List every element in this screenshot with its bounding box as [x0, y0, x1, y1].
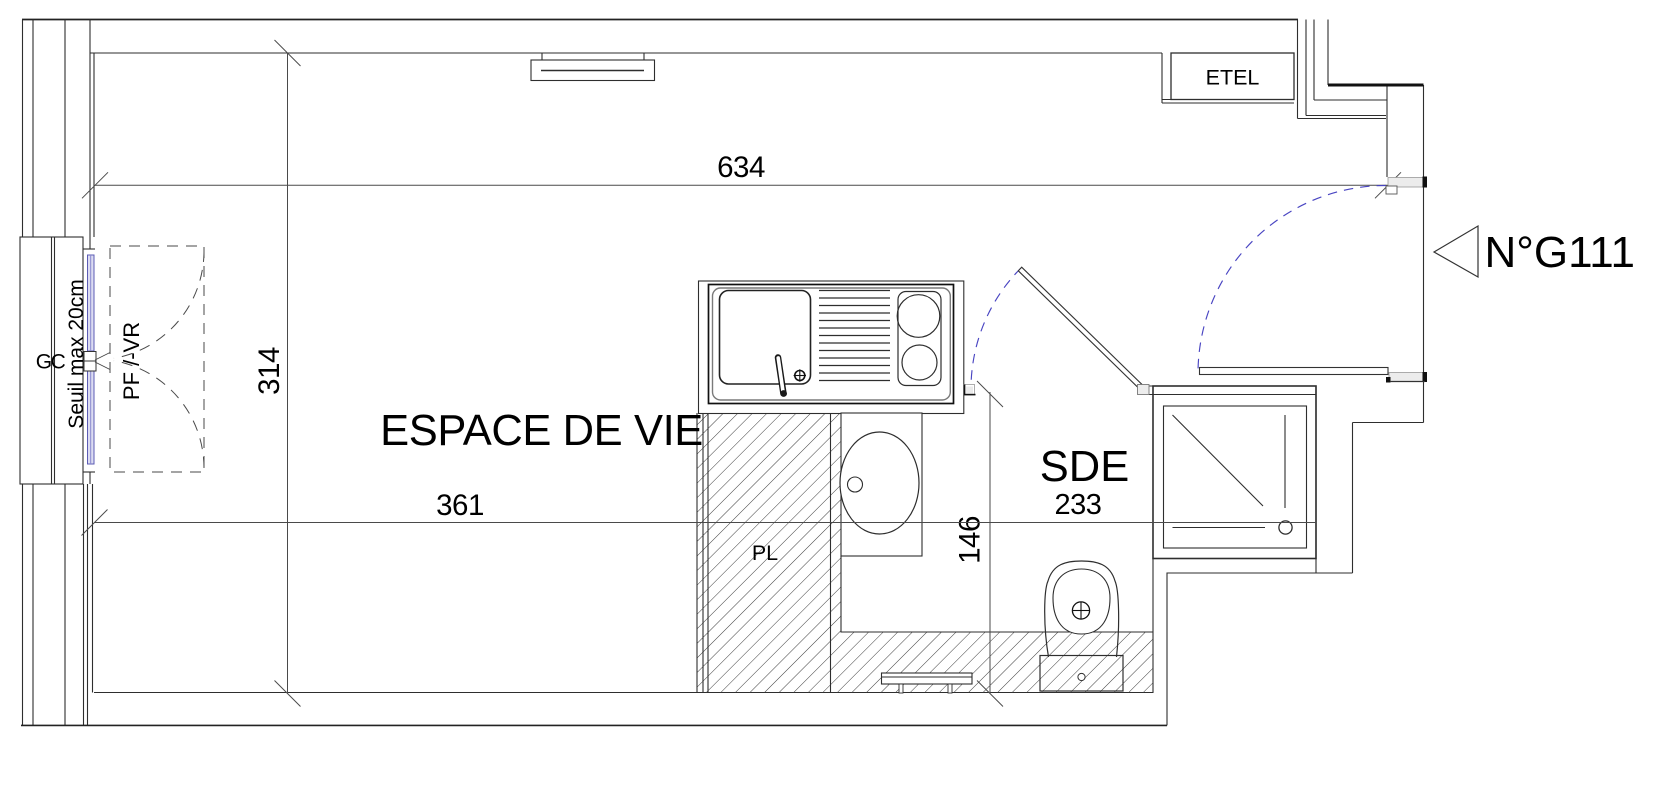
svg-text:PF /-VR: PF /-VR — [119, 322, 144, 400]
svg-text:ESPACE DE VIE: ESPACE DE VIE — [380, 407, 703, 455]
svg-text:SDE: SDE — [1040, 443, 1129, 491]
svg-text:146: 146 — [954, 516, 987, 564]
svg-text:Seuil max 20cm: Seuil max 20cm — [65, 279, 88, 428]
svg-text:361: 361 — [436, 489, 484, 522]
svg-text:233: 233 — [1055, 489, 1102, 521]
svg-text:PL: PL — [752, 541, 778, 565]
svg-text:634: 634 — [717, 151, 765, 184]
svg-text:314: 314 — [253, 347, 286, 395]
svg-text:GC: GC — [36, 351, 66, 374]
svg-text:N°G111: N°G111 — [1485, 228, 1635, 277]
svg-text:ETEL: ETEL — [1206, 66, 1260, 90]
